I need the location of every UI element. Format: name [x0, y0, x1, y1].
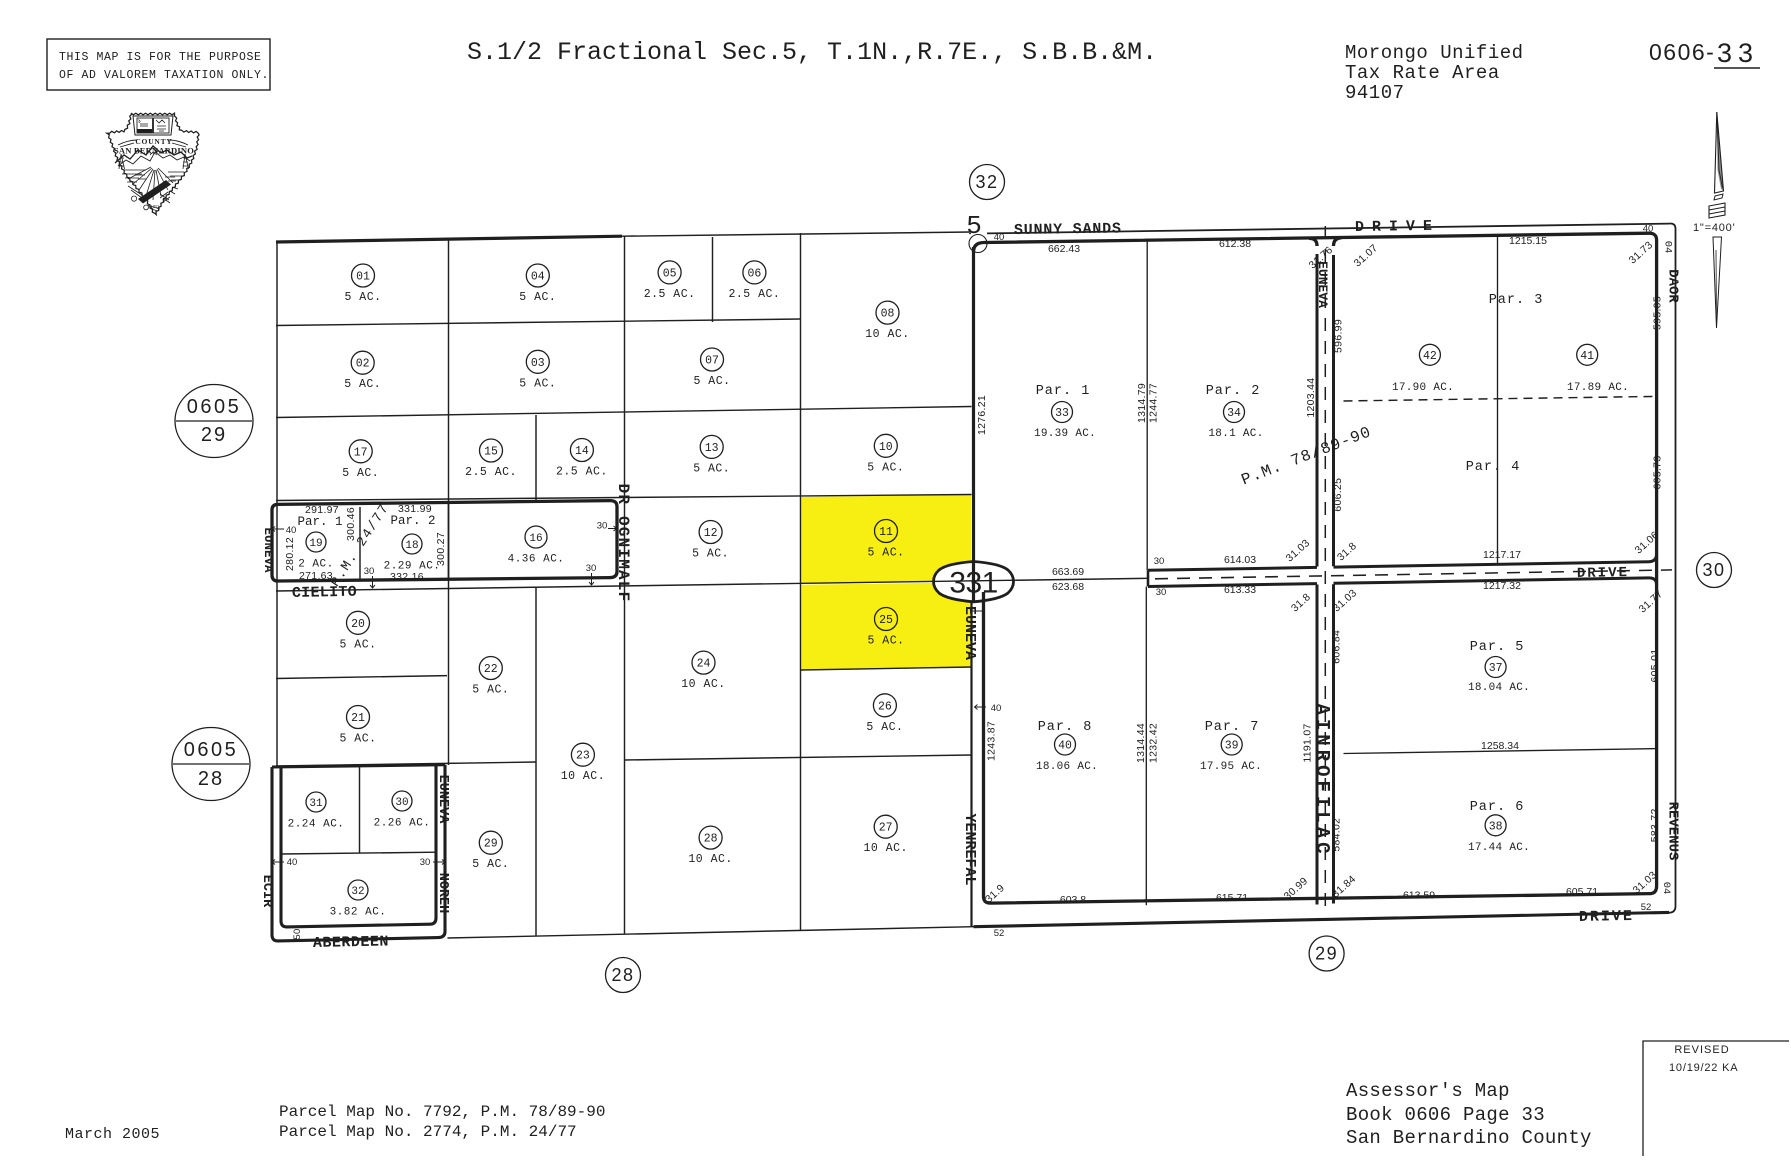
svg-text:Assessor's Map: Assessor's Map [1346, 1080, 1510, 1102]
svg-text:REVISED: REVISED [1674, 1044, 1729, 1056]
svg-text:5 AC.: 5 AC. [519, 377, 556, 390]
svg-text:30: 30 [1156, 587, 1167, 598]
svg-text:0606-: 0606- [1649, 39, 1715, 65]
svg-text:Par. 5: Par. 5 [1470, 640, 1525, 655]
svg-text:614.03: 614.03 [1224, 554, 1256, 566]
svg-text:DRIVE: DRIVE [1579, 908, 1634, 926]
svg-text:19.39 AC.: 19.39 AC. [1034, 428, 1096, 440]
svg-text:02: 02 [356, 358, 370, 371]
svg-text:Par. 2: Par. 2 [390, 514, 435, 528]
svg-text:52: 52 [994, 928, 1005, 939]
svg-text:1203.44: 1203.44 [1305, 378, 1317, 418]
svg-text:5 AC.: 5 AC. [339, 733, 376, 746]
svg-text:1191.07: 1191.07 [1301, 723, 1313, 762]
svg-text:2.29 AC.: 2.29 AC. [384, 561, 441, 573]
svg-text:40: 40 [991, 703, 1002, 714]
svg-text:THIS MAP IS FOR THE PURPOSE: THIS MAP IS FOR THE PURPOSE [59, 51, 262, 64]
svg-text:Par. 4: Par. 4 [1466, 460, 1521, 475]
svg-text:1"=400': 1"=400' [1693, 222, 1736, 234]
svg-text:331: 331 [949, 567, 998, 600]
svg-text:2.5 AC.: 2.5 AC. [556, 466, 608, 479]
svg-text:603.8: 603.8 [1060, 894, 1086, 906]
svg-text:615.71: 615.71 [1216, 892, 1248, 904]
svg-text:1276.21: 1276.21 [976, 395, 988, 435]
svg-text:26: 26 [878, 700, 892, 713]
svg-text:14: 14 [575, 445, 589, 458]
svg-text:50: 50 [292, 928, 303, 939]
svg-text:271.63: 271.63 [299, 570, 333, 582]
svg-text:DR OGNIMALF: DR OGNIMALF [614, 484, 632, 603]
svg-text:ECIR: ECIR [259, 875, 274, 908]
svg-text:623.68: 623.68 [1052, 581, 1084, 593]
svg-text:32: 32 [351, 886, 364, 898]
svg-text:663.69: 663.69 [1052, 566, 1084, 578]
svg-text:2.24 AC.: 2.24 AC. [288, 819, 345, 831]
svg-text:12: 12 [704, 527, 718, 540]
svg-text:40: 40 [994, 232, 1005, 243]
svg-text:17: 17 [354, 446, 368, 459]
svg-text:1853: 1853 [151, 204, 161, 209]
svg-text:5 AC.: 5 AC. [693, 375, 730, 388]
svg-text:Par. 3: Par. 3 [1489, 293, 1544, 308]
svg-text:EUNEVA: EUNEVA [261, 527, 275, 573]
svg-text:0605: 0605 [184, 739, 239, 761]
svg-text:5 AC.: 5 AC. [339, 638, 376, 651]
svg-text:30: 30 [420, 857, 431, 868]
svg-text:2.26 AC.: 2.26 AC. [374, 818, 431, 830]
svg-text:5 AC.: 5 AC. [866, 721, 903, 734]
svg-text:5 AC.: 5 AC. [867, 461, 904, 474]
svg-text:Parcel Map No. 2774, P.M. 24/7: Parcel Map No. 2774, P.M. 24/77 [279, 1123, 577, 1141]
svg-text:584.02: 584.02 [1331, 818, 1343, 852]
svg-text:16: 16 [529, 533, 542, 545]
svg-text:5 AC.: 5 AC. [344, 378, 381, 391]
svg-text:28: 28 [198, 768, 224, 790]
svg-text:Par. 6: Par. 6 [1470, 800, 1525, 815]
svg-text:07: 07 [705, 355, 719, 368]
svg-text:1314.79: 1314.79 [1136, 383, 1148, 423]
svg-text:EUNEVA: EUNEVA [961, 606, 978, 660]
svg-text:20: 20 [351, 618, 365, 631]
svg-text:DRIVE: DRIVE [1355, 218, 1440, 236]
svg-text:17.44 AC.: 17.44 AC. [1468, 842, 1530, 854]
svg-text:YENREFAL: YENREFAL [961, 813, 978, 885]
svg-text:5 AC.: 5 AC. [342, 467, 379, 480]
svg-text:24: 24 [697, 658, 711, 671]
svg-text:94107: 94107 [1345, 82, 1405, 104]
svg-text:OF AD VALOREM TAXATION ONLY.: OF AD VALOREM TAXATION ONLY. [59, 69, 269, 82]
svg-text:04: 04 [1661, 241, 1673, 254]
svg-text:613.33: 613.33 [1224, 584, 1256, 596]
svg-text:DRIVE: DRIVE [1577, 565, 1629, 582]
svg-text:18.1 AC.: 18.1 AC. [1208, 428, 1263, 440]
svg-text:2.5 AC.: 2.5 AC. [465, 466, 517, 479]
svg-text:11: 11 [879, 526, 893, 539]
svg-text:18: 18 [405, 540, 418, 552]
svg-text:06: 06 [747, 267, 761, 280]
svg-text:42: 42 [1423, 350, 1437, 363]
svg-text:23: 23 [576, 750, 590, 763]
svg-text:Parcel Map No. 7792, P.M. 78/8: Parcel Map No. 7792, P.M. 78/89-90 [279, 1103, 605, 1121]
svg-text:40: 40 [1058, 740, 1072, 753]
svg-text:2.5 AC.: 2.5 AC. [644, 288, 696, 301]
svg-text:5 AC.: 5 AC. [344, 291, 381, 304]
svg-text:EUNEVA: EUNEVA [435, 775, 450, 825]
svg-text:Tax Rate Area: Tax Rate Area [1345, 62, 1500, 84]
svg-text:613.59: 613.59 [1403, 890, 1435, 902]
svg-text:10 AC.: 10 AC. [688, 853, 732, 866]
svg-text:27: 27 [879, 822, 893, 835]
svg-text:10/19/22 KA: 10/19/22 KA [1669, 1062, 1738, 1074]
svg-text:28: 28 [704, 833, 718, 846]
svg-text:583.72: 583.72 [1649, 808, 1661, 842]
svg-text:March 2005: March 2005 [65, 1126, 160, 1143]
svg-text:19: 19 [309, 538, 322, 550]
svg-text:606.25: 606.25 [1332, 478, 1344, 512]
svg-text:Par. 7: Par. 7 [1205, 720, 1260, 735]
svg-text:1243.87: 1243.87 [986, 721, 998, 761]
svg-text:30: 30 [597, 521, 608, 532]
svg-text:332.16: 332.16 [390, 571, 424, 583]
svg-text:33: 33 [1717, 38, 1759, 68]
svg-text:37: 37 [1489, 662, 1503, 675]
svg-text:05: 05 [663, 267, 677, 280]
svg-text:13: 13 [705, 442, 719, 455]
svg-text:300.46: 300.46 [345, 507, 357, 541]
svg-text:605.71: 605.71 [1566, 886, 1598, 898]
svg-text:596.99: 596.99 [1332, 319, 1344, 353]
svg-text:5 AC.: 5 AC. [867, 547, 904, 560]
svg-text:17.90 AC.: 17.90 AC. [1392, 382, 1454, 394]
svg-text:1215.15: 1215.15 [1509, 235, 1547, 247]
svg-text:5 AC.: 5 AC. [472, 684, 509, 697]
svg-text:41: 41 [1580, 350, 1594, 363]
svg-text:1314.44: 1314.44 [1135, 723, 1147, 763]
svg-text:S.1/2 Fractional Sec.5, T.1N.,: S.1/2 Fractional Sec.5, T.1N.,R.7E., S.B… [467, 38, 1157, 67]
svg-text:Par. 1: Par. 1 [297, 515, 342, 529]
svg-text:33: 33 [1055, 407, 1069, 420]
svg-text:10 AC.: 10 AC. [863, 842, 907, 855]
svg-text:01: 01 [356, 271, 370, 284]
svg-text:39: 39 [1225, 740, 1239, 753]
svg-text:280.12: 280.12 [284, 537, 296, 571]
svg-text:San Bernardino County: San Bernardino County [1346, 1127, 1592, 1149]
svg-text:1232.42: 1232.42 [1147, 723, 1159, 763]
svg-text:29: 29 [484, 838, 498, 851]
svg-text:30: 30 [586, 563, 597, 574]
svg-text:1217.17: 1217.17 [1483, 549, 1521, 561]
svg-text:25: 25 [879, 614, 893, 627]
svg-text:38: 38 [1489, 820, 1503, 833]
svg-text:5 AC.: 5 AC. [867, 635, 904, 648]
svg-text:30: 30 [364, 566, 375, 577]
svg-text:1217.32: 1217.32 [1483, 580, 1521, 592]
svg-text:605.73: 605.73 [1652, 456, 1664, 490]
svg-text:30: 30 [1154, 556, 1165, 567]
svg-text:10 AC.: 10 AC. [681, 678, 725, 691]
svg-text:10: 10 [879, 441, 893, 454]
svg-text:0605: 0605 [187, 396, 242, 418]
svg-text:10 AC.: 10 AC. [865, 328, 909, 341]
svg-text:5 AC.: 5 AC. [472, 858, 509, 871]
svg-text:15: 15 [484, 446, 498, 459]
svg-text:DAOR: DAOR [1665, 269, 1681, 303]
svg-text:1244.77: 1244.77 [1148, 383, 1160, 423]
svg-text:34: 34 [1227, 407, 1241, 420]
svg-text:40: 40 [1643, 224, 1654, 235]
svg-text:32: 32 [975, 172, 998, 192]
svg-text:Morongo Unified: Morongo Unified [1345, 42, 1524, 64]
svg-text:08: 08 [881, 308, 895, 321]
svg-text:CIELITO: CIELITO [292, 584, 357, 602]
svg-text:31: 31 [309, 798, 323, 810]
svg-text:ABERDEEN: ABERDEEN [313, 933, 389, 952]
svg-text:29: 29 [201, 424, 227, 446]
svg-text:30: 30 [395, 797, 408, 809]
svg-text:5 AC.: 5 AC. [693, 462, 730, 475]
svg-text:40: 40 [287, 857, 298, 868]
svg-text:10 AC.: 10 AC. [561, 770, 605, 783]
svg-text:Book 0606 Page 33: Book 0606 Page 33 [1346, 1104, 1545, 1126]
svg-text:Par. 8: Par. 8 [1038, 720, 1093, 735]
svg-text:5 AC.: 5 AC. [692, 548, 729, 561]
svg-text:29: 29 [1315, 944, 1338, 964]
svg-text:SUNNY SANDS: SUNNY SANDS [1014, 220, 1122, 239]
svg-text:52: 52 [1641, 902, 1652, 913]
svg-text:2 AC.: 2 AC. [298, 559, 334, 571]
svg-text:SAN BERNARDINO: SAN BERNARDINO [114, 146, 194, 156]
svg-text:21: 21 [351, 712, 365, 725]
svg-text:40: 40 [286, 525, 297, 536]
svg-text:5 AC.: 5 AC. [519, 291, 556, 304]
svg-text:1258.34: 1258.34 [1481, 740, 1519, 752]
svg-text:04: 04 [531, 271, 545, 284]
svg-text:Par. 2: Par. 2 [1206, 384, 1261, 399]
svg-text:606.84: 606.84 [1331, 630, 1343, 664]
svg-text:18.06 AC.: 18.06 AC. [1036, 761, 1098, 773]
svg-text:18.04 AC.: 18.04 AC. [1468, 682, 1530, 694]
svg-text:REVENUS: REVENUS [1665, 802, 1681, 861]
svg-text:662.43: 662.43 [1048, 243, 1080, 255]
svg-text:Par. 1: Par. 1 [1036, 384, 1091, 399]
svg-text:NOREH: NOREH [435, 873, 450, 914]
svg-text:03: 03 [531, 357, 545, 370]
svg-text:4.36 AC.: 4.36 AC. [508, 554, 565, 566]
svg-text:22: 22 [484, 663, 498, 676]
svg-text:5: 5 [966, 211, 982, 241]
svg-text:595.05: 595.05 [1652, 296, 1664, 330]
svg-text:612.38: 612.38 [1219, 238, 1251, 250]
svg-text:605.01: 605.01 [1649, 649, 1661, 683]
svg-text:30: 30 [1702, 560, 1725, 580]
svg-text:28: 28 [611, 965, 634, 985]
svg-text:2.5 AC.: 2.5 AC. [728, 288, 780, 301]
svg-text:3.82 AC.: 3.82 AC. [330, 907, 387, 919]
svg-text:04: 04 [1660, 882, 1672, 895]
svg-text:17.89 AC.: 17.89 AC. [1567, 382, 1629, 394]
svg-text:17.95 AC.: 17.95 AC. [1200, 761, 1262, 773]
